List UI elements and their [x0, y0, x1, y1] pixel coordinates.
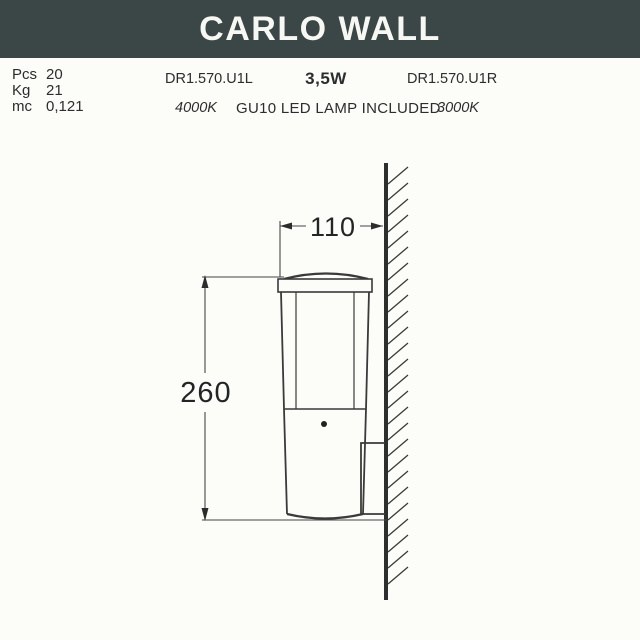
lamp-bottom-rim [287, 514, 363, 519]
technical-drawing: 110 260 [0, 0, 640, 640]
lamp-top-dome [284, 274, 368, 280]
width-arrow-right [371, 223, 383, 230]
datasheet-page: CARLO WALL Pcs 20 Kg 21 mc 0,121 DR1.570… [0, 0, 640, 640]
width-dimension-label: 110 [310, 212, 356, 242]
lamp-glass-inner-edges [296, 292, 354, 409]
height-dimension-label: 260 [180, 377, 231, 409]
lamp-outline [278, 274, 385, 519]
lamp-cap [278, 279, 372, 292]
wall-hatching-lines [388, 167, 408, 584]
width-arrow-left [280, 223, 292, 230]
lamp-glass-outer-edges [281, 292, 369, 409]
screw-dot [321, 421, 327, 427]
height-arrow-bottom [202, 508, 209, 521]
